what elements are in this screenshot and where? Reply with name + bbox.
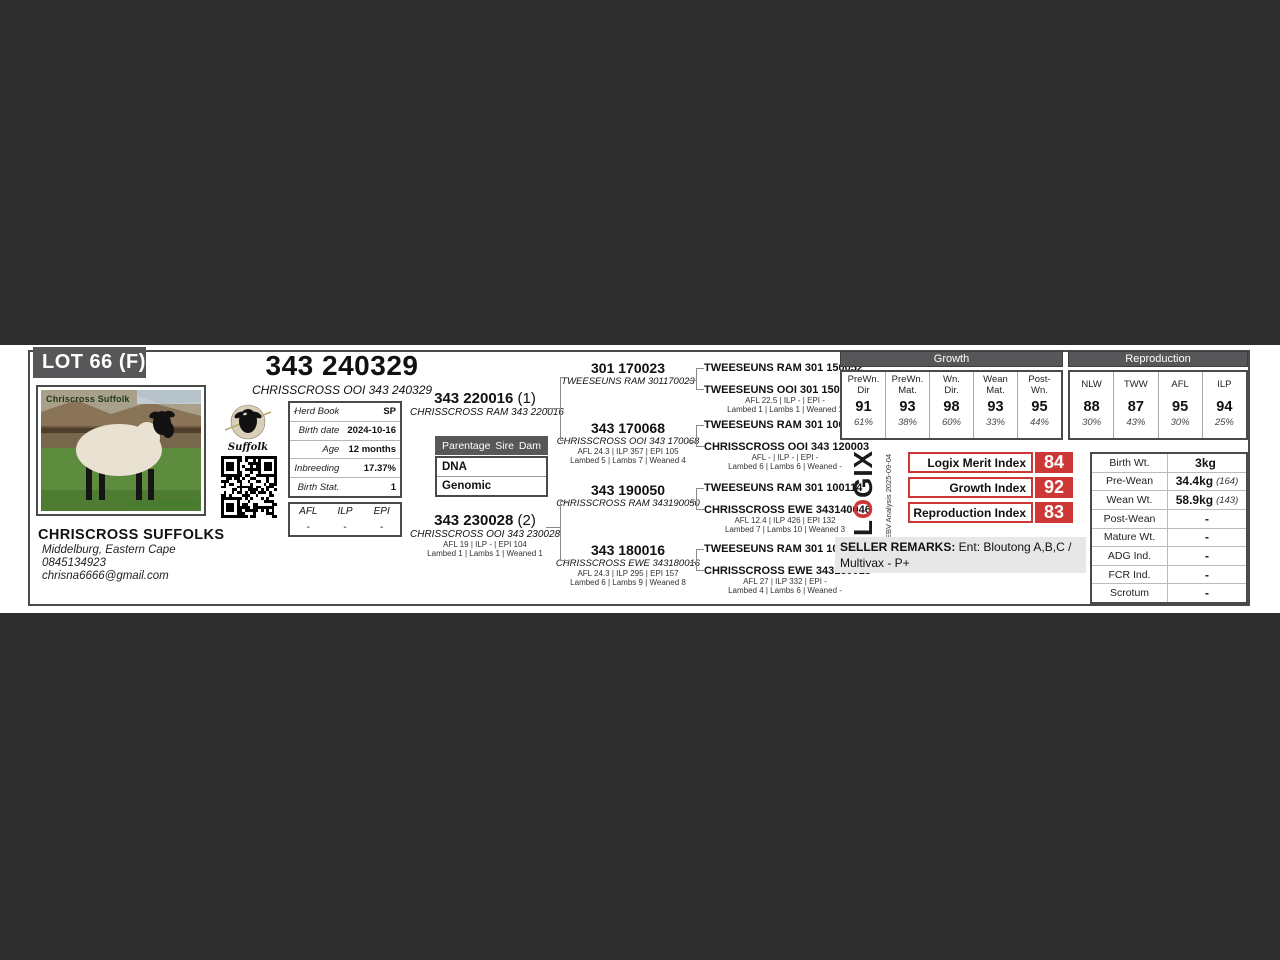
pedigree-connector bbox=[688, 380, 696, 381]
ebv-column: Wean Mat. 93 33% bbox=[974, 372, 1018, 438]
ebv-accuracy: 38% bbox=[886, 417, 929, 428]
info-value: 12 months bbox=[339, 444, 400, 455]
ebv-column: PreWn. Dir 91 61% bbox=[842, 372, 886, 438]
weights-table: Birth Wt. 3kg Pre-Wean 34.4kg(164) Wean … bbox=[1090, 452, 1248, 604]
ebv-trait-label: NLW bbox=[1070, 372, 1113, 399]
ancestor-stats: AFL 24.3 | ILP 295 | EPI 157 bbox=[550, 569, 706, 578]
info-label: Birth date bbox=[290, 425, 339, 436]
index-label: Reproduction Index bbox=[908, 502, 1033, 523]
weight-label: FCR Ind. bbox=[1092, 566, 1168, 584]
pedigree-connector bbox=[696, 488, 704, 510]
sire-tag: (1) bbox=[518, 390, 536, 407]
logix-logo-text: GIX bbox=[848, 450, 879, 498]
logix-logo: LOGIX bbox=[843, 447, 883, 539]
afl-ilp-epi-table: AFL ILP EPI - - - bbox=[288, 502, 402, 537]
weight-value: 58.9kg bbox=[1176, 493, 1213, 507]
ancestor-name: TWEESEUNS RAM 301170023 bbox=[550, 376, 706, 387]
photo-caption: LOT 66 343240329 bbox=[128, 499, 197, 508]
logix-logo-o: O bbox=[848, 498, 879, 519]
pedigree-connector bbox=[696, 549, 704, 571]
growth-index-row: Growth Index 92 bbox=[908, 477, 1073, 498]
pedigree-connector bbox=[546, 527, 560, 528]
ebv-accuracy: 60% bbox=[930, 417, 973, 428]
info-value: SP bbox=[339, 406, 400, 417]
dam-stats: AFL 19 | ILP - | EPI 104 bbox=[410, 540, 560, 549]
pedigree-connector bbox=[546, 408, 560, 409]
weight-value: 3kg bbox=[1195, 456, 1216, 470]
weight-label: Wean Wt. bbox=[1092, 491, 1168, 509]
pedigree-connector bbox=[688, 442, 696, 443]
pedigree-dam: 343 230028 (2) CHRISSCROSS OOI 343 23002… bbox=[410, 512, 560, 558]
weight-label: Birth Wt. bbox=[1092, 454, 1168, 472]
ebv-column: ILP 94 25% bbox=[1203, 372, 1246, 438]
ancestor-stats: AFL - | ILP - | EPI - bbox=[704, 453, 866, 462]
pedigree-connector bbox=[696, 368, 704, 390]
ebv-column: Wn. Dir. 98 60% bbox=[930, 372, 974, 438]
ebv-accuracy: 44% bbox=[1018, 417, 1061, 428]
info-label: Herd Book bbox=[290, 406, 339, 417]
ebv-trait-label: Wean Mat. bbox=[974, 372, 1017, 399]
weight-row: FCR Ind. - bbox=[1092, 566, 1246, 585]
ebv-value: 91 bbox=[842, 399, 885, 415]
ebv-column: AFL 95 30% bbox=[1159, 372, 1203, 438]
weight-note: (164) bbox=[1216, 476, 1238, 487]
ancestor-stats: AFL 27 | ILP 332 | EPI - bbox=[704, 577, 866, 586]
weight-label: Mature Wt. bbox=[1092, 529, 1168, 547]
dam-tag: (2) bbox=[518, 512, 536, 529]
weight-label: Post-Wean bbox=[1092, 510, 1168, 528]
afl-header-row: AFL ILP EPI bbox=[290, 504, 400, 520]
weight-value: - bbox=[1205, 530, 1209, 544]
afl-header: AFL bbox=[290, 506, 327, 517]
ebv-value: 93 bbox=[974, 399, 1017, 415]
ebv-accuracy: 30% bbox=[1159, 417, 1202, 428]
pedigree-connector bbox=[688, 562, 696, 563]
ebv-accuracy: 30% bbox=[1070, 417, 1113, 428]
ebv-value: 98 bbox=[930, 399, 973, 415]
animal-photo: Chriscross Suffolk LOT 66 343240329 bbox=[41, 390, 201, 511]
ebv-analysis-date: EBV Analysis 2025-09-04 bbox=[884, 447, 897, 539]
ancestor-stats: Lambed 7 | Lambs 10 | Weaned 3 bbox=[704, 525, 866, 534]
ebv-value: 95 bbox=[1018, 399, 1061, 415]
parentage-table: DNA Genomic bbox=[435, 456, 548, 497]
logix-merit-index-row: Logix Merit Index 84 bbox=[908, 452, 1073, 473]
ancestor-name: CHRISSCROSS RAM 343190050 bbox=[550, 498, 706, 509]
catalog-page: { "lot": { "label": "LOT 66 (F)" }, "tit… bbox=[0, 0, 1280, 960]
afl-value-row: - - - bbox=[290, 520, 400, 536]
ancestor-stats: Lambed 6 | Lambs 6 | Weaned - bbox=[704, 462, 866, 471]
seller-remarks-label: SELLER REMARKS: bbox=[840, 540, 955, 554]
breeder-location: Middelburg, Eastern Cape bbox=[42, 544, 176, 556]
parentage-title: Parentage bbox=[442, 440, 490, 452]
info-row-birthdate: Birth date 2024-10-16 bbox=[290, 422, 400, 441]
weight-value: - bbox=[1205, 568, 1209, 582]
pedigree-grandsire-paternal: 301 170023 TWEESEUNS RAM 301170023 bbox=[550, 360, 706, 387]
dam-name: CHRISSCROSS OOI 343 230028 bbox=[410, 529, 560, 540]
weight-row: Scrotum - bbox=[1092, 584, 1246, 602]
breed-logo-label: Suffolk bbox=[219, 442, 277, 453]
weight-row: ADG Ind. - bbox=[1092, 547, 1246, 566]
ebv-column: PreWn. Mat. 93 38% bbox=[886, 372, 930, 438]
pedigree-connector bbox=[560, 377, 568, 441]
ancestor-name: CHRISSCROSS OOI 343 170068 bbox=[550, 436, 706, 447]
ebv-accuracy: 25% bbox=[1203, 417, 1246, 428]
info-value: 2024-10-16 bbox=[339, 425, 400, 436]
breed-logo: Suffolk bbox=[219, 402, 277, 454]
ebv-trait-label: PreWn. Mat. bbox=[886, 372, 929, 399]
info-value: 17.37% bbox=[339, 463, 400, 474]
dam-stats: Lambed 1 | Lambs 1 | Weaned 1 bbox=[410, 549, 560, 558]
seller-remarks: SELLER REMARKS: Ent: Bloutong A,B,C / Mu… bbox=[835, 537, 1086, 573]
info-value: 1 bbox=[339, 482, 400, 493]
info-row-herdbook: . Herd Book SP bbox=[290, 403, 400, 422]
reproduction-index-row: Reproduction Index 83 bbox=[908, 502, 1073, 523]
weight-row: Wean Wt. 58.9kg(143) bbox=[1092, 491, 1246, 510]
sheep-photo-illustration bbox=[41, 390, 201, 511]
suffolk-head-icon bbox=[224, 402, 272, 444]
ancestor-id: 301 170023 bbox=[550, 360, 706, 376]
index-value: 83 bbox=[1035, 502, 1073, 523]
ebv-column: TWW 87 43% bbox=[1114, 372, 1158, 438]
info-label: Inbreeding bbox=[290, 463, 339, 474]
breeder-name: CHRISCROSS SUFFOLKS bbox=[38, 527, 224, 543]
ancestor-stats: AFL 24.3 | ILP 357 | EPI 105 bbox=[550, 447, 706, 456]
index-value: 84 bbox=[1035, 452, 1073, 473]
info-label: Birth Stat. bbox=[290, 482, 339, 493]
weight-row: Birth Wt. 3kg bbox=[1092, 454, 1246, 473]
breeder-phone: 0845134923 bbox=[42, 557, 106, 569]
ebv-accuracy: 43% bbox=[1114, 417, 1157, 428]
ebv-trait-label: AFL bbox=[1159, 372, 1202, 399]
ancestor-stats: Lambed 4 | Lambs 6 | Weaned - bbox=[704, 586, 866, 595]
pedigree-connector bbox=[696, 425, 704, 447]
parentage-row-dna: DNA bbox=[437, 458, 546, 477]
sire-id: 343 220016 bbox=[434, 390, 513, 407]
weight-value: 34.4kg bbox=[1176, 474, 1213, 488]
info-marker: . bbox=[293, 404, 296, 414]
animal-id-title: 343 240329 bbox=[212, 350, 472, 382]
parentage-col-sire: Sire bbox=[495, 440, 514, 452]
animal-info-table: . Herd Book SP Birth date 2024-10-16 Age… bbox=[288, 401, 402, 498]
growth-ebv-table: PreWn. Dir 91 61% PreWn. Mat. 93 38% Wn.… bbox=[840, 370, 1063, 440]
weight-row: Pre-Wean 34.4kg(164) bbox=[1092, 473, 1246, 492]
parentage-row-genomic: Genomic bbox=[437, 477, 546, 495]
ebv-accuracy: 33% bbox=[974, 417, 1017, 428]
sire-name: CHRISSCROSS RAM 343 220016 bbox=[410, 407, 560, 418]
ebv-trait-label: ILP bbox=[1203, 372, 1246, 399]
ilp-value: - bbox=[327, 522, 364, 533]
logix-logo-text: L bbox=[848, 519, 879, 536]
weight-value: - bbox=[1205, 512, 1209, 526]
epi-header: EPI bbox=[363, 506, 400, 517]
ancestor-stats: AFL 12.4 | ILP 426 | EPI 132 bbox=[704, 516, 866, 525]
index-label: Logix Merit Index bbox=[908, 452, 1033, 473]
weight-note: (143) bbox=[1216, 495, 1238, 506]
weight-label: Scrotum bbox=[1092, 584, 1168, 602]
ebv-trait-label: PreWn. Dir bbox=[842, 372, 885, 399]
breeder-email: chrisna6666@gmail.com bbox=[42, 570, 169, 582]
lot-number-badge: LOT 66 (F) bbox=[33, 347, 146, 378]
ebv-trait-label: Post- Wn. bbox=[1018, 372, 1061, 399]
ebv-trait-label: TWW bbox=[1114, 372, 1157, 399]
animal-photo-frame: Chriscross Suffolk LOT 66 343240329 bbox=[36, 385, 206, 516]
pedigree-granddam-paternal: 343 170068 CHRISSCROSS OOI 343 170068 AF… bbox=[550, 420, 706, 465]
weight-label: Pre-Wean bbox=[1092, 473, 1168, 491]
info-row-birthstat: Birth Stat. 1 bbox=[290, 478, 400, 496]
weight-value: - bbox=[1205, 549, 1209, 563]
photo-watermark: Chriscross Suffolk bbox=[46, 394, 130, 404]
ebv-column: NLW 88 30% bbox=[1070, 372, 1114, 438]
ancestor-id: 343 170068 bbox=[550, 420, 706, 436]
ancestor-stats: Lambed 5 | Lambs 7 | Weaned 4 bbox=[550, 456, 706, 465]
ebv-column: Post- Wn. 95 44% bbox=[1018, 372, 1061, 438]
ancestor-id: 343 180016 bbox=[550, 542, 706, 558]
info-label: Age bbox=[290, 444, 339, 455]
dam-id: 343 230028 bbox=[434, 512, 513, 529]
ancestor-id: 343 190050 bbox=[550, 482, 706, 498]
ancestor-stats: Lambed 6 | Lambs 9 | Weaned 8 bbox=[550, 578, 706, 587]
reproduction-section-header: Reproduction bbox=[1068, 351, 1248, 367]
ebv-value: 88 bbox=[1070, 399, 1113, 415]
ebv-value: 95 bbox=[1159, 399, 1202, 415]
reproduction-ebv-table: NLW 88 30% TWW 87 43% AFL 95 30% ILP 94 … bbox=[1068, 370, 1248, 440]
info-row-inbreeding: Inbreeding 17.37% bbox=[290, 459, 400, 478]
ebv-value: 87 bbox=[1114, 399, 1157, 415]
epi-value: - bbox=[363, 522, 400, 533]
afl-value: - bbox=[290, 522, 327, 533]
parentage-header: Parentage Sire Dam bbox=[435, 436, 548, 455]
pedigree-grandsire-maternal: 343 190050 CHRISSCROSS RAM 343190050 bbox=[550, 482, 706, 509]
ebv-analysis-date-text: EBV Analysis 2025-09-04 bbox=[884, 447, 897, 539]
pedigree-granddam-maternal: 343 180016 CHRISSCROSS EWE 343180016 AFL… bbox=[550, 542, 706, 587]
ebv-value: 93 bbox=[886, 399, 929, 415]
ebv-accuracy: 61% bbox=[842, 417, 885, 428]
parentage-col-dam: Dam bbox=[519, 440, 541, 452]
pedigree-sire: 343 220016 (1) CHRISSCROSS RAM 343 22001… bbox=[410, 390, 560, 418]
weight-row: Post-Wean - bbox=[1092, 510, 1246, 529]
index-value: 92 bbox=[1035, 477, 1073, 498]
pedigree-connector bbox=[560, 501, 568, 561]
pedigree-connector bbox=[688, 501, 696, 502]
growth-section-header: Growth bbox=[840, 351, 1063, 367]
ebv-trait-label: Wn. Dir. bbox=[930, 372, 973, 399]
weight-row: Mature Wt. - bbox=[1092, 529, 1246, 548]
weight-label: ADG Ind. bbox=[1092, 547, 1168, 565]
qr-code bbox=[221, 456, 277, 518]
ebv-value: 94 bbox=[1203, 399, 1246, 415]
info-row-age: Age 12 months bbox=[290, 441, 400, 460]
ancestor-name: CHRISSCROSS EWE 343180016 bbox=[550, 558, 706, 569]
index-label: Growth Index bbox=[908, 477, 1033, 498]
ilp-header: ILP bbox=[327, 506, 364, 517]
weight-value: - bbox=[1205, 586, 1209, 600]
